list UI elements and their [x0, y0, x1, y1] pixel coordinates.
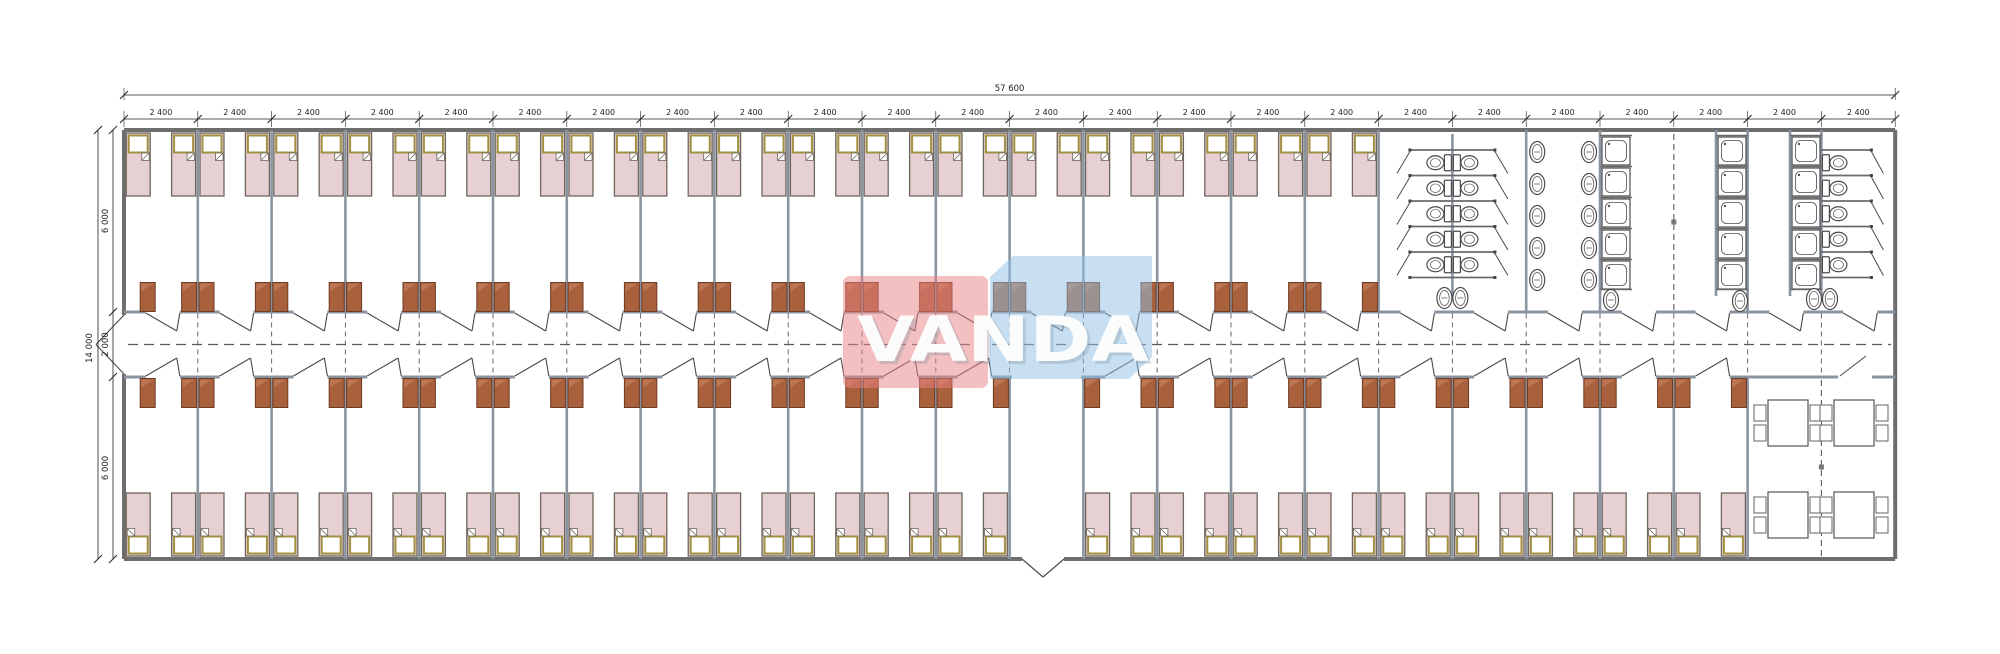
wardrobe [772, 283, 787, 312]
wardrobe [420, 283, 435, 312]
shower-tray [1718, 230, 1746, 258]
door-gap [662, 375, 696, 380]
dim-module-label: 2 400 [223, 108, 246, 117]
bed [1012, 133, 1036, 196]
shower-tray [1792, 137, 1820, 165]
bed [762, 493, 786, 556]
door-gap [1327, 310, 1361, 315]
door-leaf [620, 313, 623, 331]
stall-door-leaf [1397, 152, 1410, 174]
door-leaf [1727, 358, 1730, 376]
pillow [1162, 136, 1181, 153]
stall-door-leaf [1397, 254, 1410, 276]
toilet-bowl [1830, 258, 1847, 272]
dim-total-width-label: 57 600 [995, 84, 1025, 94]
pillow [1724, 537, 1743, 554]
door-leaf [546, 313, 549, 331]
bed [1500, 493, 1524, 556]
pillow [1355, 136, 1374, 153]
shower-tray [1792, 199, 1820, 227]
pillow [248, 136, 267, 153]
pillow [572, 136, 591, 153]
pillow [1457, 537, 1476, 554]
toilet [1453, 257, 1478, 273]
pillow [645, 537, 664, 554]
bed [938, 133, 962, 196]
pillow [1679, 537, 1698, 554]
pillow [867, 136, 886, 153]
pillow [543, 537, 562, 554]
drain [1798, 205, 1800, 207]
dim-module-label: 2 400 [1109, 108, 1132, 117]
pillow [941, 136, 960, 153]
washbasin [1582, 238, 1597, 259]
wardrobe [273, 283, 288, 312]
shower-tray [1718, 137, 1746, 165]
toilet-bowl [1427, 156, 1444, 170]
drain [1608, 174, 1610, 176]
door-gap [1548, 375, 1582, 380]
door-leaf [293, 313, 324, 331]
toilet-tank [1822, 231, 1829, 247]
bed [1455, 493, 1479, 556]
dim-module-label: 2 400 [1330, 108, 1353, 117]
dining-door-leaf [1840, 356, 1866, 376]
bed [1159, 493, 1183, 556]
door-gap [1696, 310, 1730, 315]
door-gap [1400, 375, 1434, 380]
stall-post [1408, 174, 1411, 177]
door-gap [293, 375, 327, 380]
shower-tray [1602, 230, 1630, 258]
stall-door-leaf [1397, 228, 1410, 250]
door-leaf [293, 358, 324, 376]
shower-tray [1602, 261, 1630, 289]
pillow [1088, 136, 1107, 153]
tray-outline [1602, 261, 1630, 289]
washbasin [1437, 288, 1452, 309]
bed [1205, 493, 1229, 556]
stall-post [1493, 225, 1496, 228]
door-leaf [367, 313, 398, 331]
toilet-bowl [1830, 156, 1847, 170]
wardrobe [273, 379, 288, 408]
dim-module-label: 2 400 [740, 108, 763, 117]
toilet-bowl [1427, 258, 1444, 272]
door-gap [1843, 310, 1877, 315]
washbasin [1530, 142, 1545, 163]
pillow [1650, 537, 1669, 554]
drain [1798, 236, 1800, 238]
door-leaf [1653, 313, 1656, 331]
tray-outline [1718, 199, 1746, 227]
chair [1820, 517, 1832, 533]
door-leaf [1505, 358, 1508, 376]
door-leaf [589, 313, 620, 331]
stall-post [1493, 200, 1496, 203]
washbasin [1582, 174, 1597, 195]
bed [1131, 133, 1155, 196]
door-leaf [1179, 313, 1210, 331]
door-gap [810, 310, 844, 315]
bed [643, 133, 667, 196]
wardrobe [698, 283, 713, 312]
pillow [350, 537, 369, 554]
door-leaf [1696, 358, 1727, 376]
wardrobe [1158, 283, 1173, 312]
shower-tray [1718, 261, 1746, 289]
dining-table [1768, 492, 1808, 538]
tray-outline [1602, 137, 1630, 165]
watermark-logo: VANDAVANDA [843, 256, 1152, 388]
bed [1307, 493, 1331, 556]
door-leaf [251, 313, 254, 331]
wardrobe [698, 379, 713, 408]
dining-table-group [1820, 400, 1888, 446]
toilet-bowl [1427, 207, 1444, 221]
door-leaf [324, 358, 327, 376]
bed [393, 493, 417, 556]
tray-outline [1792, 137, 1820, 165]
dim-band-label: 6 000 [101, 209, 111, 233]
pillow [469, 537, 488, 554]
door-leaf [515, 313, 546, 331]
door-leaf [810, 313, 841, 331]
door-leaf [662, 358, 693, 376]
pillow [396, 136, 415, 153]
dim-module-label: 2 400 [1625, 108, 1648, 117]
bed [614, 133, 638, 196]
drain [1608, 267, 1610, 269]
chair [1754, 425, 1766, 441]
chair [1754, 405, 1766, 421]
wardrobe [624, 379, 639, 408]
washbasin [1530, 174, 1545, 195]
toilet-bowl [1461, 232, 1478, 246]
door-gap [1474, 375, 1508, 380]
wardrobe [1362, 283, 1377, 312]
stall-post [1408, 225, 1411, 228]
bed [1426, 493, 1450, 556]
bed [1676, 493, 1700, 556]
tray-outline [1792, 168, 1820, 196]
bed [1131, 493, 1155, 556]
wardrobe [642, 283, 657, 312]
bed [1057, 133, 1081, 196]
door-gap [810, 375, 844, 380]
drain [1724, 236, 1726, 238]
chair [1876, 517, 1888, 533]
pillow [719, 537, 738, 554]
washbasin [1453, 288, 1468, 309]
pillow [986, 136, 1005, 153]
door-gap [367, 375, 401, 380]
chair [1754, 517, 1766, 533]
door-leaf [1505, 313, 1508, 331]
door-leaf [441, 313, 472, 331]
tray-outline [1602, 199, 1630, 227]
dim-module-label: 2 400 [371, 108, 394, 117]
wardrobe [1158, 379, 1173, 408]
door-leaf [177, 358, 180, 376]
wardrobe [494, 379, 509, 408]
bed [467, 493, 491, 556]
toilet [1822, 231, 1847, 247]
drain [1608, 205, 1610, 207]
wardrobe [1527, 379, 1542, 408]
wardrobe [624, 283, 639, 312]
washbasin [1530, 270, 1545, 291]
door-gap [662, 310, 696, 315]
pillow [645, 136, 664, 153]
wardrobe [1601, 379, 1616, 408]
wardrobe [1232, 379, 1247, 408]
stall-post [1870, 225, 1873, 228]
stall-door-leaf [1397, 177, 1410, 199]
pillow [793, 537, 812, 554]
toilet [1427, 155, 1452, 171]
dim-band-label: 2 000 [101, 332, 111, 356]
drain [1724, 143, 1726, 145]
tray-outline [1792, 261, 1820, 289]
stall-post [1493, 149, 1496, 152]
bed [200, 133, 224, 196]
toilet [1822, 155, 1847, 171]
bed [245, 133, 269, 196]
wardrobe [568, 379, 583, 408]
dim-module-label: 2 400 [1699, 108, 1722, 117]
pillow [424, 537, 443, 554]
door-leaf [1769, 313, 1800, 331]
door-leaf [398, 358, 401, 376]
zone-marker [1671, 220, 1676, 225]
stall-post [1408, 251, 1411, 254]
pillow [396, 537, 415, 554]
door-leaf [1653, 358, 1656, 376]
bed [643, 493, 667, 556]
washbasin [1530, 206, 1545, 227]
door-leaf [220, 358, 251, 376]
wardrobe [347, 283, 362, 312]
toilet-bowl [1461, 207, 1478, 221]
pillow [1207, 136, 1226, 153]
bed [983, 133, 1007, 196]
door-leaf [1400, 313, 1431, 331]
toilet-tank [1453, 257, 1460, 273]
door-leaf [1548, 358, 1579, 376]
pillow [1134, 136, 1153, 153]
stall-post [1408, 149, 1411, 152]
wardrobe [1232, 283, 1247, 312]
stall-door-leaf [1871, 228, 1883, 250]
bed [1279, 133, 1303, 196]
drain [1724, 205, 1726, 207]
door-leaf [620, 358, 623, 376]
washbasin [1582, 206, 1597, 227]
door-gap [589, 375, 623, 380]
shower-tray [1718, 199, 1746, 227]
bed [172, 133, 196, 196]
bed [319, 133, 343, 196]
door-leaf [1579, 313, 1582, 331]
washbasin [1604, 290, 1619, 311]
stall-post [1493, 276, 1496, 279]
logo-text: VANDA [857, 303, 1149, 376]
bed [348, 133, 372, 196]
pillow [765, 136, 784, 153]
wardrobe [1362, 379, 1377, 408]
dim-module-label: 2 400 [666, 108, 689, 117]
door-gap [1769, 310, 1803, 315]
wardrobe [329, 379, 344, 408]
toilet-tank [1453, 206, 1460, 222]
door-gap [736, 310, 770, 315]
wardrobe [140, 283, 155, 312]
wardrobe [182, 379, 197, 408]
door-leaf [1843, 313, 1874, 331]
door-gap [1696, 375, 1730, 380]
door-leaf [1284, 358, 1287, 376]
bed [910, 493, 934, 556]
door-leaf [693, 358, 696, 376]
bed [467, 133, 491, 196]
shower-tray [1602, 199, 1630, 227]
stall-post [1408, 200, 1411, 203]
dim-module-label: 2 400 [1773, 108, 1796, 117]
door-leaf [1474, 313, 1505, 331]
wardrobe [199, 283, 214, 312]
dim-module-label: 2 400 [1404, 108, 1427, 117]
door-gap [1622, 375, 1656, 380]
pillow [469, 136, 488, 153]
door-leaf [146, 358, 177, 376]
wardrobe [716, 379, 731, 408]
door-gap [1253, 375, 1287, 380]
pillow [617, 537, 636, 554]
door-leaf [736, 313, 767, 331]
door-leaf [1327, 313, 1358, 331]
door-leaf [177, 313, 180, 331]
pillow [719, 136, 738, 153]
dim-band-label: 6 000 [101, 456, 111, 480]
wardrobe [1215, 379, 1230, 408]
dim-module-label: 2 400 [814, 108, 837, 117]
wardrobe [789, 283, 804, 312]
toilet-tank [1453, 231, 1460, 247]
bed [541, 133, 565, 196]
pillow [276, 537, 295, 554]
toilet-tank [1822, 155, 1829, 171]
door-leaf [1210, 358, 1213, 376]
chair [1820, 425, 1832, 441]
bed [274, 493, 298, 556]
door-leaf [146, 313, 177, 331]
door-leaf [662, 313, 693, 331]
stall-post [1408, 276, 1411, 279]
bed [1648, 493, 1672, 556]
bed [1205, 133, 1229, 196]
fixtures-layer [1397, 136, 1884, 312]
door-gap [1253, 310, 1287, 315]
door-gap [293, 310, 327, 315]
wardrobe [642, 379, 657, 408]
dim-total-height-label: 14 000 [85, 333, 95, 363]
bed [569, 493, 593, 556]
stall-door-leaf [1397, 203, 1410, 225]
stall-door-leaf [1495, 203, 1508, 225]
bed [1381, 493, 1405, 556]
door-gap [220, 310, 254, 315]
wardrobe [255, 379, 270, 408]
wardrobe [1454, 379, 1469, 408]
bed [1086, 133, 1110, 196]
bed [717, 493, 741, 556]
door-leaf [1358, 358, 1361, 376]
door-leaf [1431, 313, 1434, 331]
wardrobe [1436, 379, 1451, 408]
entrance-door-leaf [1043, 559, 1064, 577]
bed [790, 493, 814, 556]
toilet-tank [1444, 257, 1451, 273]
bed [319, 493, 343, 556]
wardrobe [329, 283, 344, 312]
pillow [129, 537, 148, 554]
bed [421, 493, 445, 556]
toilet-bowl [1427, 232, 1444, 246]
toilet-tank [1453, 155, 1460, 171]
dining-table-group [1820, 492, 1888, 538]
bed [1352, 133, 1376, 196]
toilet [1453, 206, 1478, 222]
bed [126, 493, 150, 556]
pillow [1576, 537, 1595, 554]
stall-door-leaf [1495, 254, 1508, 276]
toilet [1453, 180, 1478, 196]
dim-module-label: 2 400 [1256, 108, 1279, 117]
door-leaf [324, 313, 327, 331]
bed [762, 133, 786, 196]
pillow [941, 537, 960, 554]
bed [614, 493, 638, 556]
door-leaf [1210, 313, 1213, 331]
door-leaf [1622, 313, 1653, 331]
pillow [1281, 537, 1300, 554]
toilet-tank [1822, 180, 1829, 196]
door-gap [1327, 375, 1361, 380]
bed [1352, 493, 1376, 556]
toilet [1822, 257, 1847, 273]
tray-outline [1718, 168, 1746, 196]
door-gap [220, 375, 254, 380]
dining-table [1834, 400, 1874, 446]
door-gap [515, 375, 549, 380]
bed [393, 133, 417, 196]
bed [1233, 493, 1257, 556]
tray-outline [1792, 230, 1820, 258]
pillow [1310, 136, 1329, 153]
door-leaf [767, 358, 770, 376]
wardrobe [1380, 379, 1395, 408]
toilet-bowl [1461, 156, 1478, 170]
dim-module-label: 2 400 [149, 108, 172, 117]
pillow [322, 136, 341, 153]
drain [1798, 143, 1800, 145]
toilet [1453, 155, 1478, 171]
bed [421, 133, 445, 196]
pillow [1531, 537, 1550, 554]
dining-door-gap [1838, 375, 1872, 380]
pillow [1355, 537, 1374, 554]
